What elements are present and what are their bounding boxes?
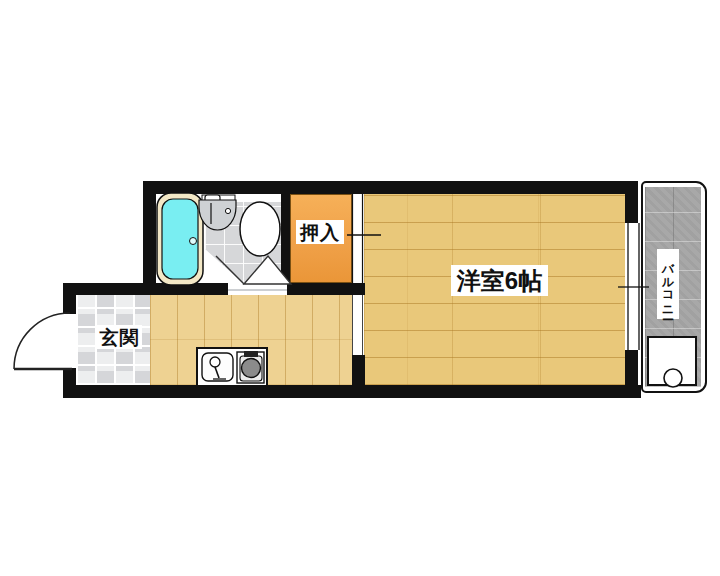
gas-stove-burner: [242, 359, 261, 378]
folding-door-leaf: [216, 256, 244, 284]
fixture-overlay: [0, 0, 720, 576]
kitchen-faucet-head: [210, 357, 220, 367]
gas-stove-control: [244, 351, 258, 357]
western-room-label: 洋室6帖: [451, 265, 548, 296]
closet-label: 押入: [296, 220, 344, 244]
bathtub-drain: [190, 238, 197, 245]
balcony-label: バルコニー: [657, 249, 679, 319]
entrance-label: 玄関: [97, 325, 142, 349]
washbasin-drain: [225, 208, 230, 213]
washer-pan-drain: [664, 369, 682, 387]
folding-door-swing-triangle: [244, 256, 291, 284]
entry-door-swing-arc: [14, 313, 70, 369]
floor-plan-canvas: 押入 洋室6帖 玄関 バルコニー: [0, 0, 720, 576]
washbasin-bowl: [199, 200, 236, 230]
toilet: [240, 202, 280, 256]
